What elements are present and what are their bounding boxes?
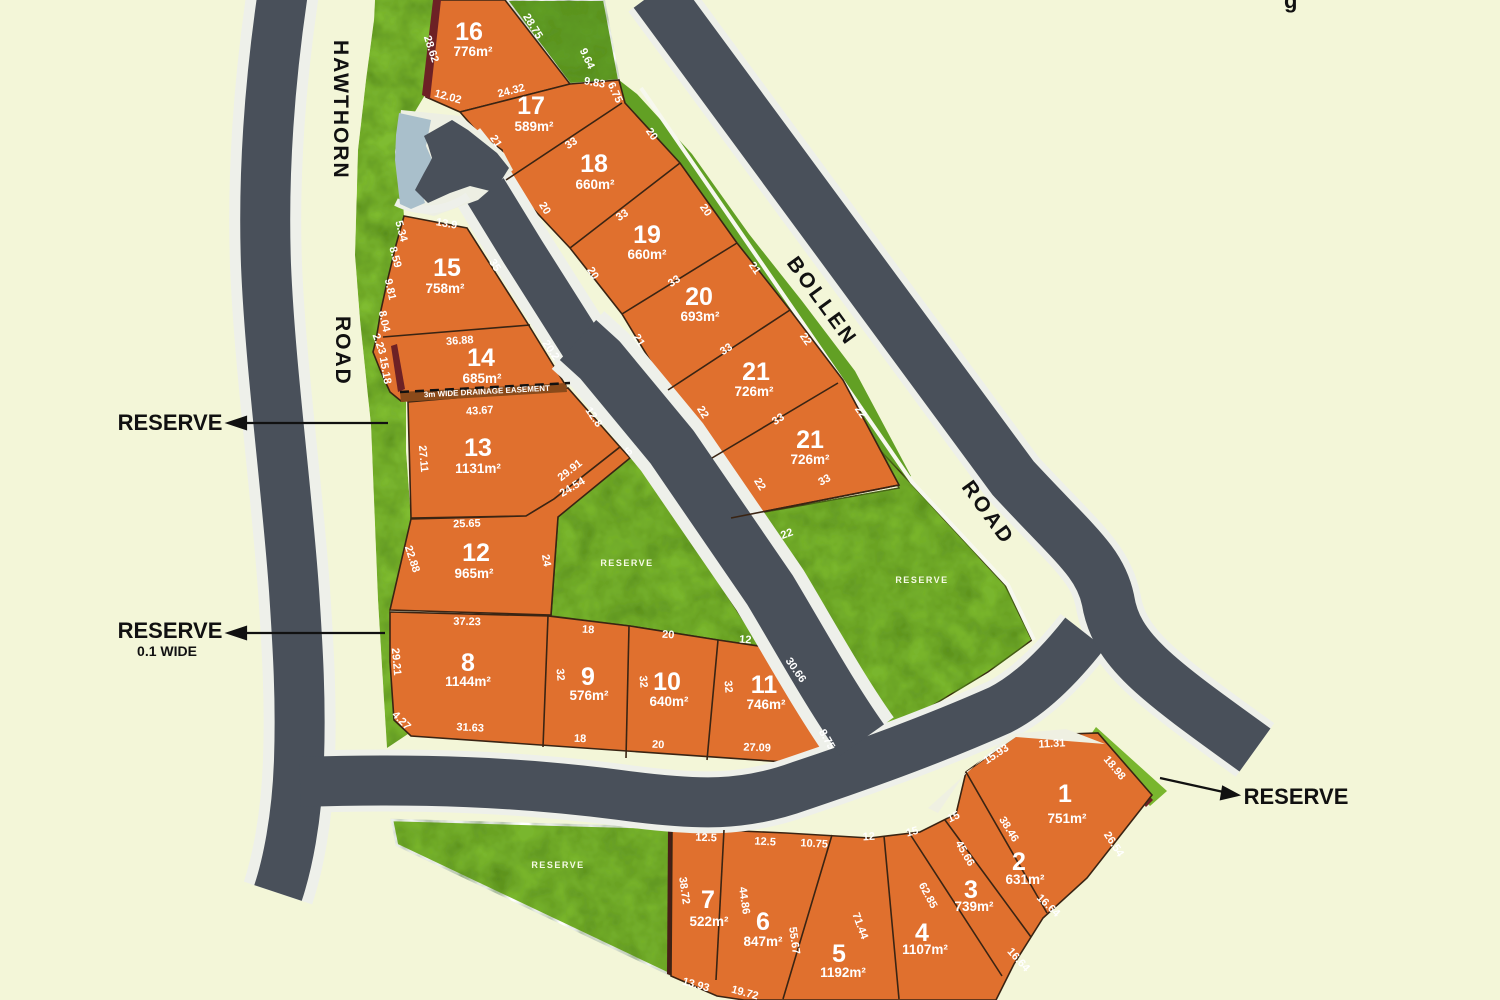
svg-text:32: 32 <box>553 668 566 681</box>
svg-text:8: 8 <box>461 649 475 677</box>
svg-text:1: 1 <box>1058 780 1072 808</box>
svg-text:10: 10 <box>653 668 681 696</box>
svg-text:522m²: 522m² <box>689 914 729 929</box>
svg-text:17: 17 <box>517 92 545 120</box>
svg-text:RESERVE: RESERVE <box>118 618 223 643</box>
svg-text:43.67: 43.67 <box>466 404 494 418</box>
svg-text:5: 5 <box>832 940 846 968</box>
svg-text:31.63: 31.63 <box>456 721 484 734</box>
svg-text:10.75: 10.75 <box>800 837 828 850</box>
svg-text:21: 21 <box>796 426 824 454</box>
svg-text:27.11: 27.11 <box>416 445 430 473</box>
svg-text:631m²: 631m² <box>1005 872 1045 887</box>
svg-text:32: 32 <box>721 680 734 693</box>
svg-text:32: 32 <box>636 675 649 688</box>
svg-text:1107m²: 1107m² <box>902 942 948 957</box>
svg-text:751m²: 751m² <box>1047 811 1087 826</box>
svg-text:16: 16 <box>455 18 483 46</box>
svg-text:12: 12 <box>739 634 752 647</box>
svg-text:RESERVE: RESERVE <box>600 558 653 568</box>
svg-text:20: 20 <box>685 283 713 311</box>
svg-text:19: 19 <box>633 221 661 249</box>
svg-text:847m²: 847m² <box>743 934 783 949</box>
svg-text:21: 21 <box>742 358 770 386</box>
svg-text:1131m²: 1131m² <box>455 461 501 476</box>
svg-text:9: 9 <box>581 663 595 691</box>
svg-text:776m²: 776m² <box>453 44 493 59</box>
svg-text:25.65: 25.65 <box>453 518 481 531</box>
svg-text:29.21: 29.21 <box>389 648 403 676</box>
svg-text:965m²: 965m² <box>454 566 494 581</box>
svg-text:11: 11 <box>751 671 778 699</box>
svg-text:12.5: 12.5 <box>695 832 717 845</box>
svg-text:576m²: 576m² <box>569 688 609 703</box>
svg-text:RESERVE: RESERVE <box>531 860 584 870</box>
svg-text:12: 12 <box>862 831 875 844</box>
svg-text:20: 20 <box>662 629 675 642</box>
svg-text:18: 18 <box>580 150 608 178</box>
svg-text:685m²: 685m² <box>462 371 502 386</box>
svg-text:13: 13 <box>464 434 492 462</box>
svg-text:14: 14 <box>467 344 495 372</box>
svg-text:746m²: 746m² <box>746 697 786 712</box>
svg-text:640m²: 640m² <box>649 694 689 709</box>
svg-text:RESERVE: RESERVE <box>1244 784 1349 809</box>
svg-text:1192m²: 1192m² <box>820 965 866 980</box>
svg-text:ROAD: ROAD <box>331 316 354 386</box>
svg-text:6: 6 <box>756 908 770 936</box>
svg-text:739m²: 739m² <box>954 899 994 914</box>
svg-text:18: 18 <box>582 624 595 637</box>
svg-text:726m²: 726m² <box>790 452 830 467</box>
svg-text:758m²: 758m² <box>425 281 465 296</box>
svg-text:20: 20 <box>652 739 665 752</box>
svg-text:12: 12 <box>462 539 490 567</box>
svg-text:660m²: 660m² <box>575 177 615 192</box>
svg-text:0.1 WIDE: 0.1 WIDE <box>137 643 197 659</box>
svg-text:12.5: 12.5 <box>754 835 776 848</box>
svg-text:7: 7 <box>701 886 715 914</box>
svg-text:RESERVE: RESERVE <box>895 575 948 585</box>
svg-text:660m²: 660m² <box>627 247 667 262</box>
svg-text:g: g <box>1284 0 1297 13</box>
svg-text:RESERVE: RESERVE <box>118 410 223 435</box>
svg-text:726m²: 726m² <box>734 384 774 399</box>
svg-text:HAWTHORN: HAWTHORN <box>329 40 352 180</box>
svg-text:11.31: 11.31 <box>1038 737 1066 750</box>
svg-text:37.23: 37.23 <box>453 616 481 628</box>
svg-text:693m²: 693m² <box>680 309 720 324</box>
svg-text:589m²: 589m² <box>514 119 554 134</box>
svg-text:15: 15 <box>433 254 461 282</box>
svg-text:27.09: 27.09 <box>743 742 771 755</box>
svg-text:1144m²: 1144m² <box>445 674 491 689</box>
svg-text:36.88: 36.88 <box>446 334 474 348</box>
svg-text:18: 18 <box>574 733 587 745</box>
